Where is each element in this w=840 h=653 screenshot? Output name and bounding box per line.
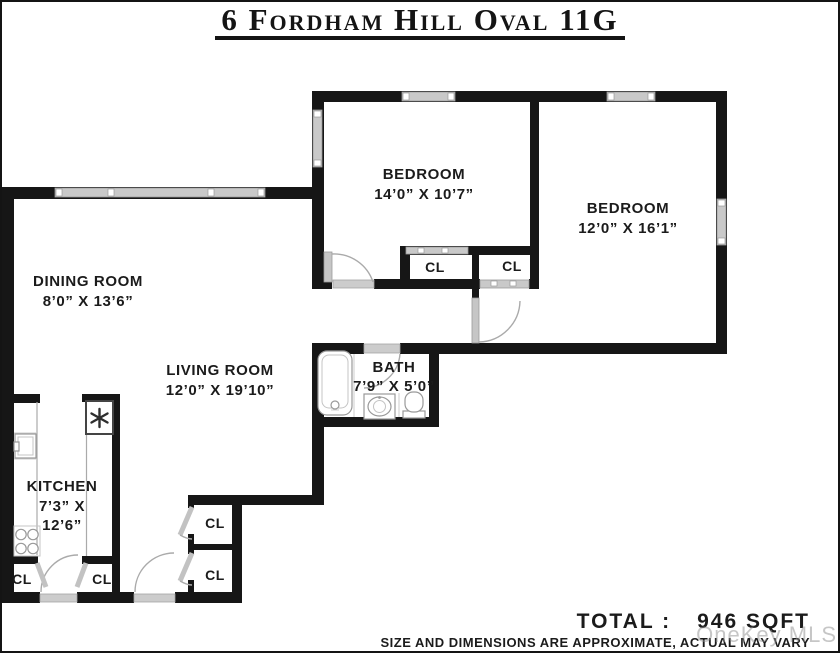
room-label-bath: BATH 7’9” X 5’0” — [353, 359, 435, 395]
closet-label: CL — [425, 259, 445, 275]
bathtub — [318, 351, 352, 415]
window — [717, 199, 726, 245]
room-dims: 7’9” X 5’0” — [353, 378, 435, 395]
window — [402, 92, 455, 101]
room-dims: 14’0” X 10’7” — [374, 186, 474, 203]
watermark: OneKey MLS — [696, 622, 837, 648]
stove — [14, 526, 40, 556]
window — [607, 92, 655, 101]
room-dims: 12’6” — [42, 517, 82, 534]
door-main-entry — [134, 553, 175, 602]
window — [313, 110, 322, 167]
closet-label: CL — [205, 515, 225, 531]
room-label-dining-room: DINING ROOM 8’0” X 13’6” — [33, 273, 143, 310]
room-name: BEDROOM — [587, 200, 670, 217]
room-name: LIVING ROOM — [166, 362, 273, 379]
room-name: KITCHEN — [27, 478, 98, 495]
closet-label: CL — [92, 571, 112, 587]
room-dims: 12’0” X 19’10” — [166, 382, 274, 399]
total-label: TOTAL : — [577, 610, 672, 633]
room-name: BEDROOM — [383, 166, 466, 183]
floor-plan: BEDROOM 14’0” X 10’7” BEDROOM 12’0” X 16… — [2, 2, 840, 653]
sliding-door — [480, 280, 529, 288]
door-bedroom2 — [472, 298, 520, 343]
sliding-door — [406, 247, 468, 254]
room-dims: 12’0” X 16’1” — [578, 220, 678, 237]
closet-label: CL — [205, 567, 225, 583]
door-kitchen-closet-right — [77, 563, 86, 587]
room-label-living-room: LIVING ROOM 12’0” X 19’10” — [166, 362, 274, 399]
room-label-bedroom-1: BEDROOM 14’0” X 10’7” — [374, 166, 474, 203]
room-name: BATH — [373, 359, 416, 376]
room-dims: 7’3” X — [39, 498, 85, 515]
room-label-bedroom-2: BEDROOM 12’0” X 16’1” — [578, 200, 678, 237]
floor-plan-page: 6 Fordham Hill Oval 11G — [0, 0, 840, 653]
closet-label: CL — [12, 571, 32, 587]
toilet — [403, 392, 425, 418]
bathroom-sink — [364, 394, 395, 419]
room-dims: 8’0” X 13’6” — [43, 293, 134, 310]
window — [55, 188, 265, 197]
room-name: DINING ROOM — [33, 273, 143, 290]
closet-label: CL — [502, 258, 522, 274]
kitchen-sink — [14, 434, 36, 458]
door-kitchen-entry — [40, 555, 78, 602]
appliance-asterisk-icon — [86, 401, 113, 434]
